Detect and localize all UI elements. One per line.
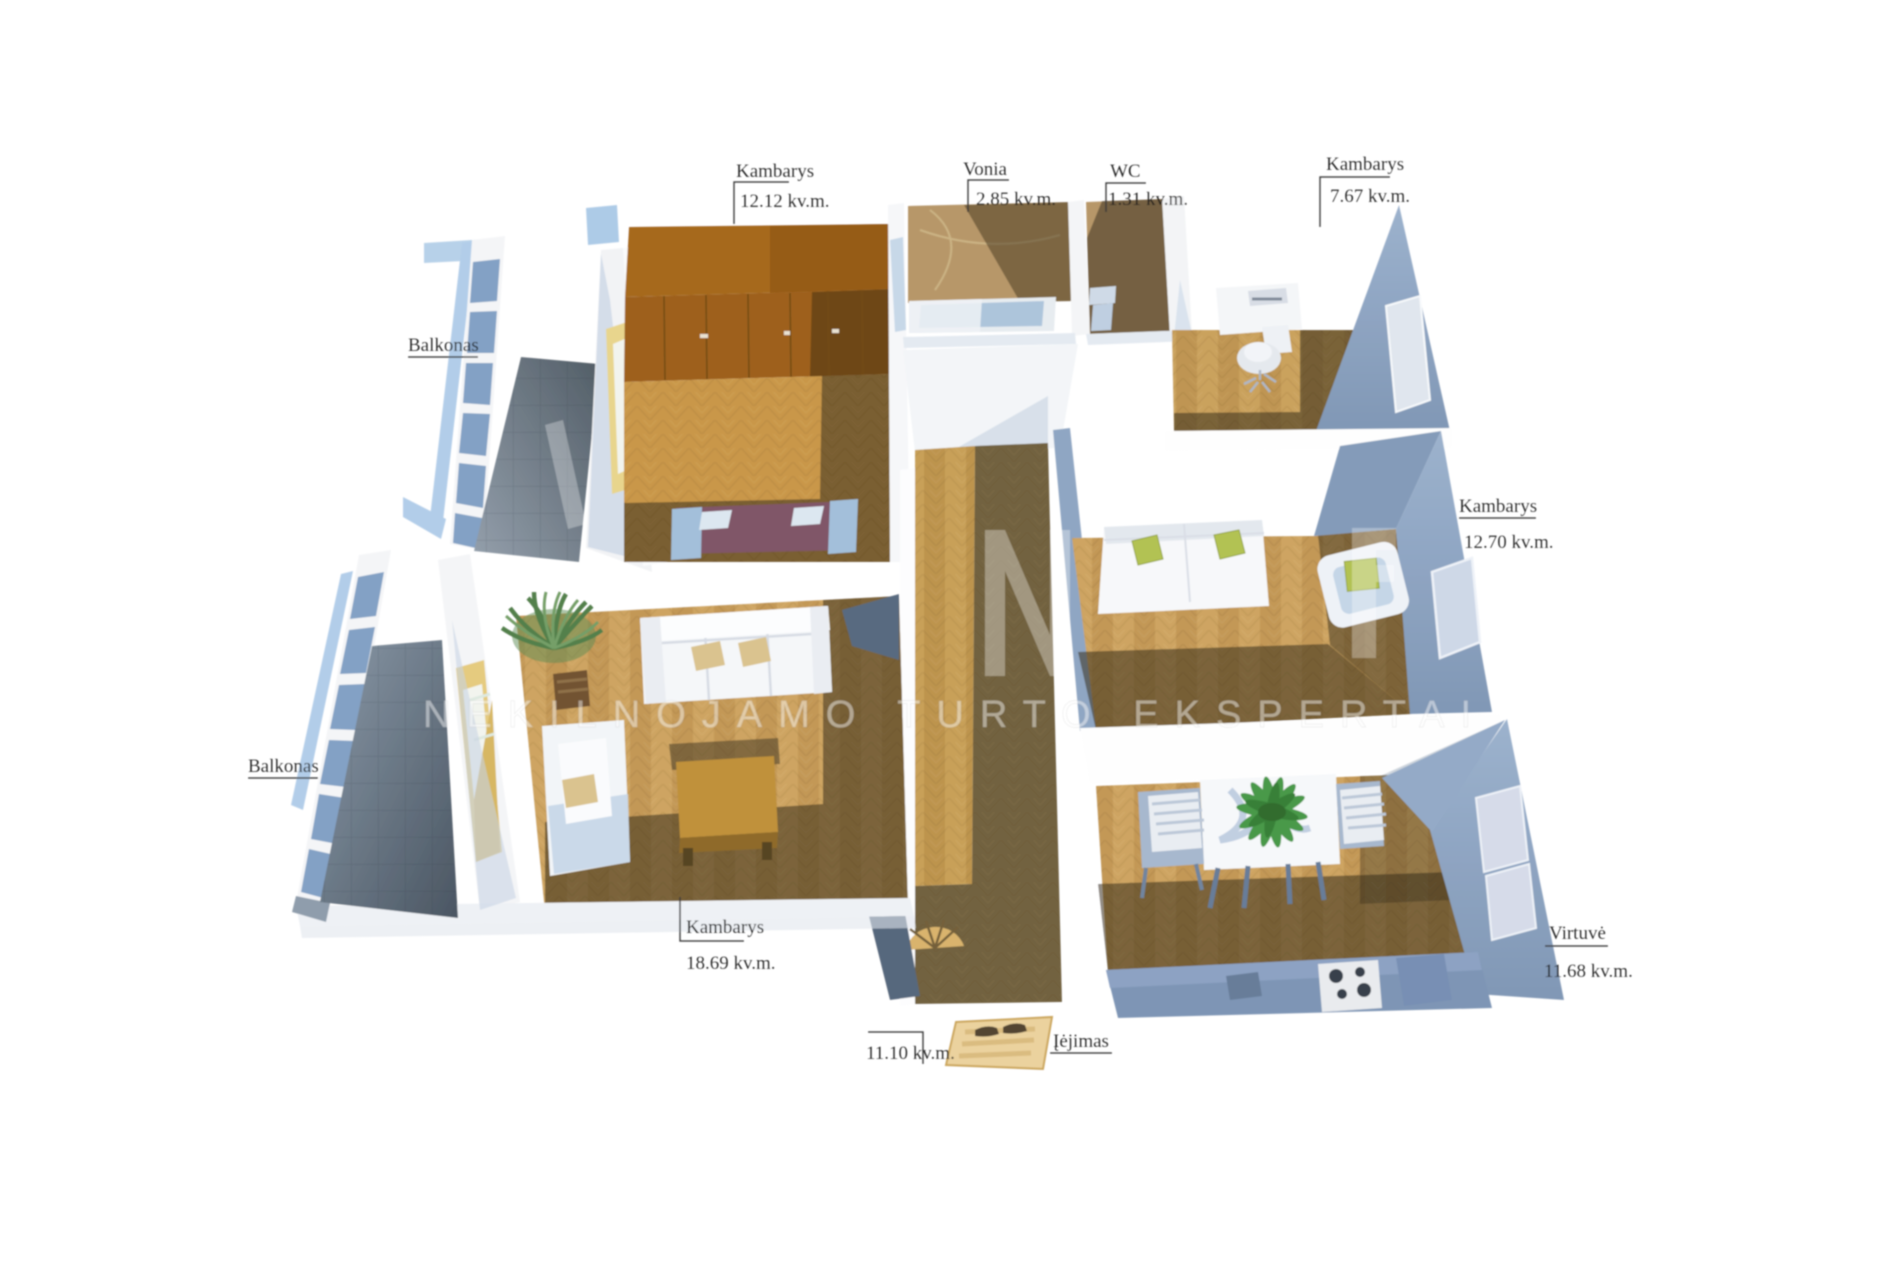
svg-text:Kambarys: Kambarys [1459, 496, 1537, 517]
svg-text:NEKILNOJAMO TURTO EKSPERTAI: NEKILNOJAMO TURTO EKSPERTAI [423, 694, 1487, 736]
svg-text:Kambarys: Kambarys [736, 161, 814, 182]
svg-text:1.31 kv.m.: 1.31 kv.m. [1108, 189, 1188, 210]
svg-text:18.69 kv.m.: 18.69 kv.m. [686, 953, 776, 974]
svg-text:11.68 kv.m.: 11.68 kv.m. [1544, 961, 1633, 982]
svg-text:2.85 kv.m.: 2.85 kv.m. [976, 189, 1056, 210]
svg-text:12.12 kv.m.: 12.12 kv.m. [740, 191, 830, 212]
svg-text:Virtuvė: Virtuvė [1549, 923, 1606, 944]
svg-text:7.67 kv.m.: 7.67 kv.m. [1330, 186, 1410, 207]
svg-text:12.70 kv.m.: 12.70 kv.m. [1464, 532, 1554, 553]
svg-text:Balkonas: Balkonas [408, 335, 479, 356]
svg-text:Įėjimas: Įėjimas [1053, 1031, 1109, 1052]
svg-text:Vonia: Vonia [963, 159, 1008, 180]
svg-text:Balkonas: Balkonas [248, 756, 319, 777]
svg-text:Kambarys: Kambarys [686, 917, 764, 938]
svg-text:WC: WC [1110, 161, 1141, 182]
svg-text:Kambarys: Kambarys [1326, 154, 1404, 175]
svg-text:11.10 kv.m.: 11.10 kv.m. [866, 1043, 955, 1064]
